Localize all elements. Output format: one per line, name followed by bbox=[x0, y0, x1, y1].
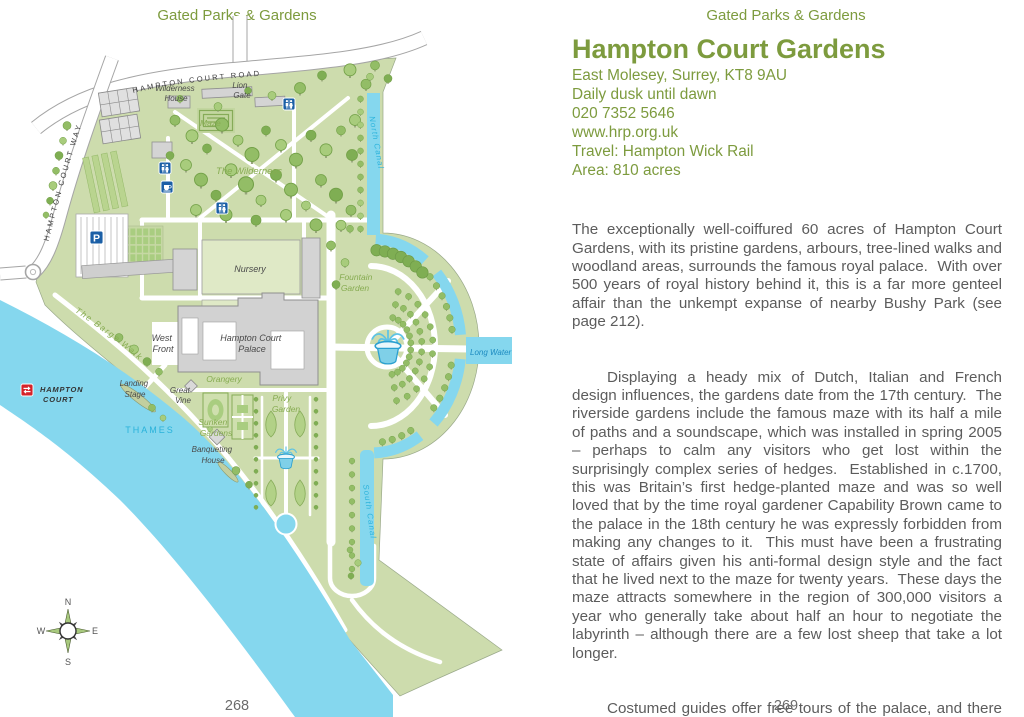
compass-rose: N E S W bbox=[37, 597, 98, 667]
compass-w: W bbox=[37, 626, 46, 636]
hampton-court-gardens-map: P bbox=[0, 0, 540, 717]
book-spread: Gated Parks & Gardens Gated Parks & Gard… bbox=[0, 0, 1024, 717]
the-wilderness-label: The Wilderness bbox=[216, 166, 282, 177]
compass-n: N bbox=[65, 597, 72, 607]
article: Hampton Court Gardens East Molesey, Surr… bbox=[572, 35, 1002, 717]
page-number-right: 269 bbox=[552, 698, 1020, 714]
orangery-label: Orangery bbox=[206, 374, 242, 384]
sunken-gardens-label: Sunken Gardens bbox=[198, 417, 233, 438]
body-text: The exceptionally well-coiffured 60 acre… bbox=[572, 184, 1002, 717]
toilets-icon bbox=[216, 202, 228, 214]
website: www.hrp.org.uk bbox=[572, 124, 1002, 143]
toilets-icon bbox=[159, 162, 171, 174]
page-title: Hampton Court Gardens bbox=[572, 35, 1002, 64]
building-east-of-nursery bbox=[302, 238, 320, 298]
compass-e: E bbox=[92, 626, 98, 636]
cafe-icon bbox=[161, 181, 173, 193]
area-info: Area: 810 acres bbox=[572, 162, 1002, 181]
travel-info: Travel: Hampton Wick Rail bbox=[572, 143, 1002, 162]
page-number-left: 268 bbox=[0, 698, 474, 714]
building-west-of-nursery bbox=[173, 249, 197, 290]
parking-icon bbox=[90, 231, 103, 244]
running-header-right: Gated Parks & Gardens bbox=[552, 7, 1020, 24]
paragraph: The exceptionally well-coiffured 60 acre… bbox=[572, 221, 1002, 331]
privy-pond bbox=[276, 514, 297, 535]
phone-number: 020 7352 5646 bbox=[572, 105, 1002, 124]
thames-label: THAMES bbox=[125, 425, 175, 435]
paragraph: Displaying a heady mix of Dutch, Italian… bbox=[572, 369, 1002, 664]
info-block: East Molesey, Surrey, KT8 9AU Daily dusk… bbox=[572, 67, 1002, 180]
opening-hours: Daily dusk until dawn bbox=[572, 86, 1002, 105]
west-front-label: West Front bbox=[152, 333, 175, 354]
toilets-icon bbox=[283, 98, 295, 110]
lion-gate-label: Lion Gate bbox=[232, 81, 251, 100]
national-rail-icon bbox=[21, 384, 33, 396]
nursery-label: Nursery bbox=[234, 264, 266, 274]
palace-courtyard-west bbox=[182, 318, 198, 354]
compass-s: S bbox=[65, 657, 71, 667]
long-water-label: Long Water bbox=[470, 348, 512, 357]
address: East Molesey, Surrey, KT8 9AU bbox=[572, 67, 1002, 86]
maze-label: Maze bbox=[200, 118, 221, 128]
roundabout bbox=[26, 265, 41, 280]
